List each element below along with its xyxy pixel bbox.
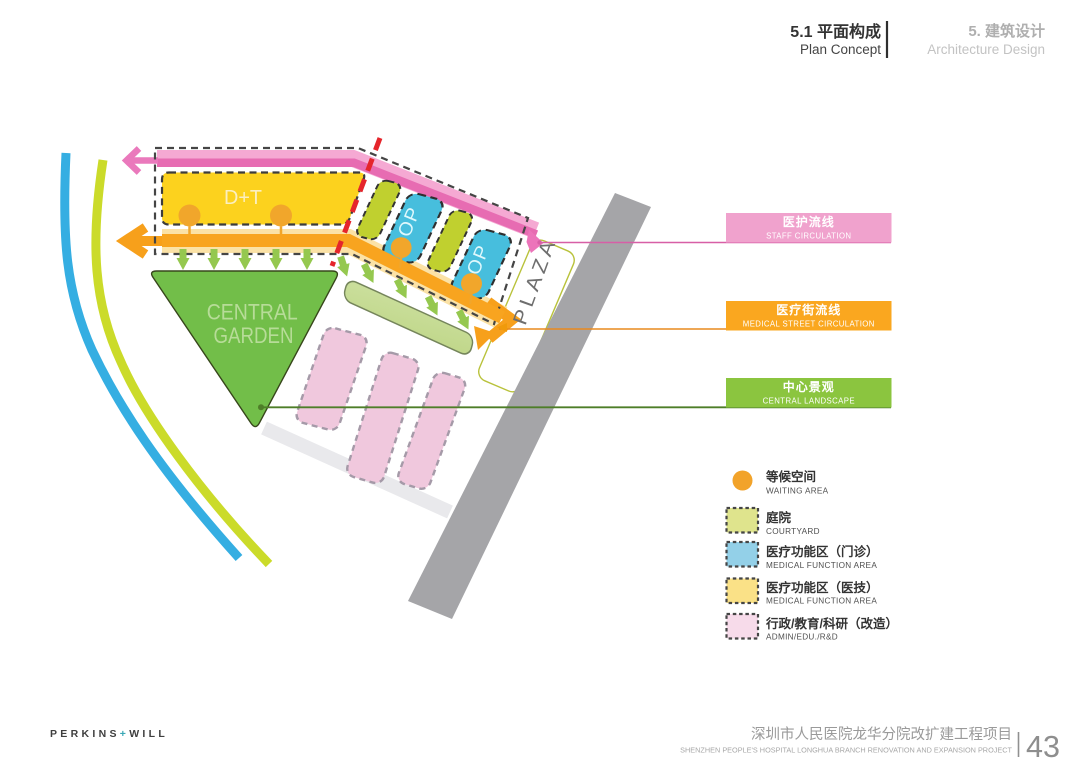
svg-text:医疗功能区（医技）: 医疗功能区（医技）	[766, 580, 879, 595]
svg-text:COURTYARD: COURTYARD	[766, 527, 820, 536]
svg-text:WAITING AREA: WAITING AREA	[766, 487, 829, 496]
svg-text:等候空间: 等候空间	[765, 469, 816, 484]
svg-text:中心景观: 中心景观	[783, 379, 835, 394]
svg-text:GARDEN: GARDEN	[214, 323, 294, 348]
svg-text:CENTRAL: CENTRAL	[207, 300, 298, 325]
svg-text:5.1 平面构成: 5.1 平面构成	[790, 22, 881, 41]
svg-text:Plan Concept: Plan Concept	[800, 42, 881, 57]
svg-text:SHENZHEN PEOPLE'S HOSPITAL LON: SHENZHEN PEOPLE'S HOSPITAL LONGHUA BRANC…	[680, 746, 1012, 755]
svg-text:MEDICAL FUNCTION AREA: MEDICAL FUNCTION AREA	[766, 597, 877, 606]
svg-text:CENTRAL LANDSCAPE: CENTRAL LANDSCAPE	[763, 397, 855, 406]
svg-text:行政/教育/科研（改造）: 行政/教育/科研（改造）	[765, 616, 898, 631]
svg-text:医护流线: 医护流线	[783, 214, 835, 229]
svg-text:MEDICAL STREET CIRCULATION: MEDICAL STREET CIRCULATION	[743, 320, 875, 329]
svg-text:ADMIN/EDU./R&D: ADMIN/EDU./R&D	[766, 633, 838, 642]
svg-text:医疗街流线: 医疗街流线	[776, 302, 841, 317]
svg-text:庭院: 庭院	[766, 510, 792, 525]
svg-text:5. 建筑设计: 5. 建筑设计	[968, 22, 1045, 40]
svg-text:Architecture Design: Architecture Design	[927, 42, 1045, 57]
svg-text:MEDICAL FUNCTION AREA: MEDICAL FUNCTION AREA	[766, 561, 877, 570]
svg-text:深圳市人民医院龙华分院改扩建工程项目: 深圳市人民医院龙华分院改扩建工程项目	[751, 726, 1012, 743]
svg-text:STAFF CIRCULATION: STAFF CIRCULATION	[766, 232, 851, 241]
svg-text:PERKINS+WILL: PERKINS+WILL	[50, 728, 168, 740]
svg-text:医疗功能区（门诊）: 医疗功能区（门诊）	[766, 544, 879, 559]
svg-text:43: 43	[1026, 730, 1060, 764]
svg-text:D+T: D+T	[224, 187, 262, 209]
